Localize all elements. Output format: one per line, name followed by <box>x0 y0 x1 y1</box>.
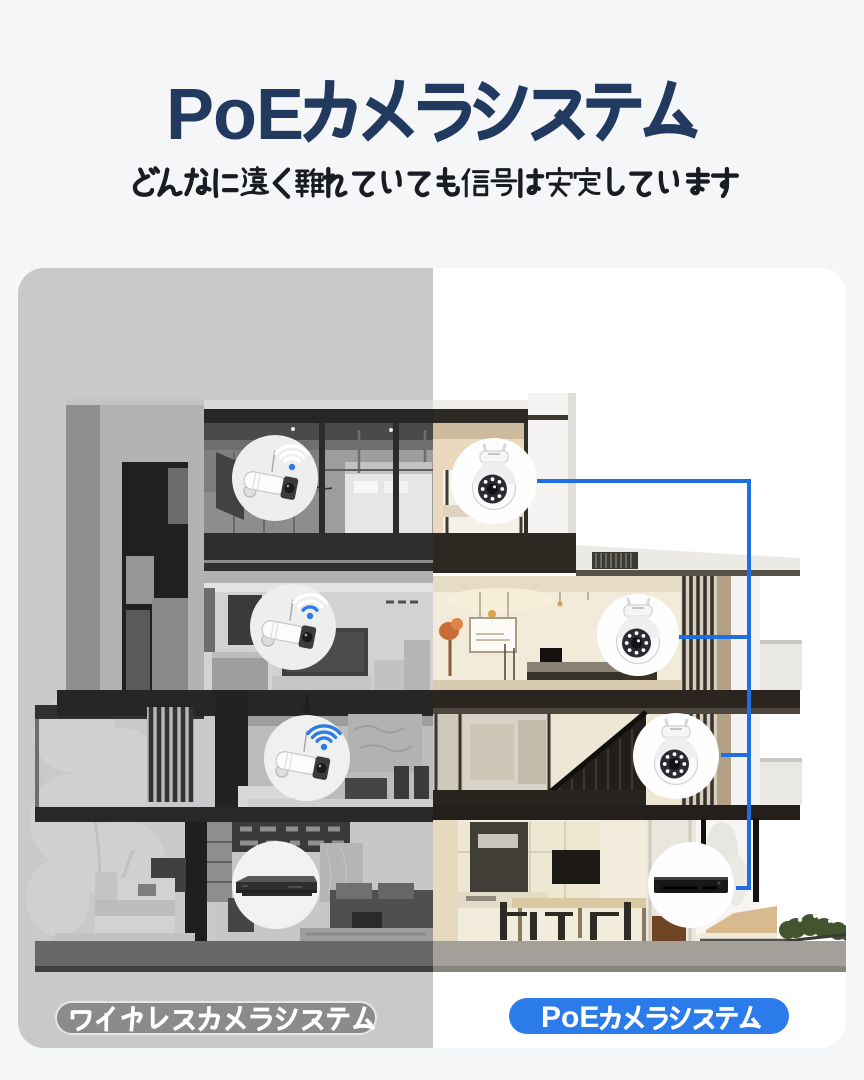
svg-text:PoE: PoE <box>541 1001 599 1034</box>
svg-text:PoE: PoE <box>166 75 303 155</box>
